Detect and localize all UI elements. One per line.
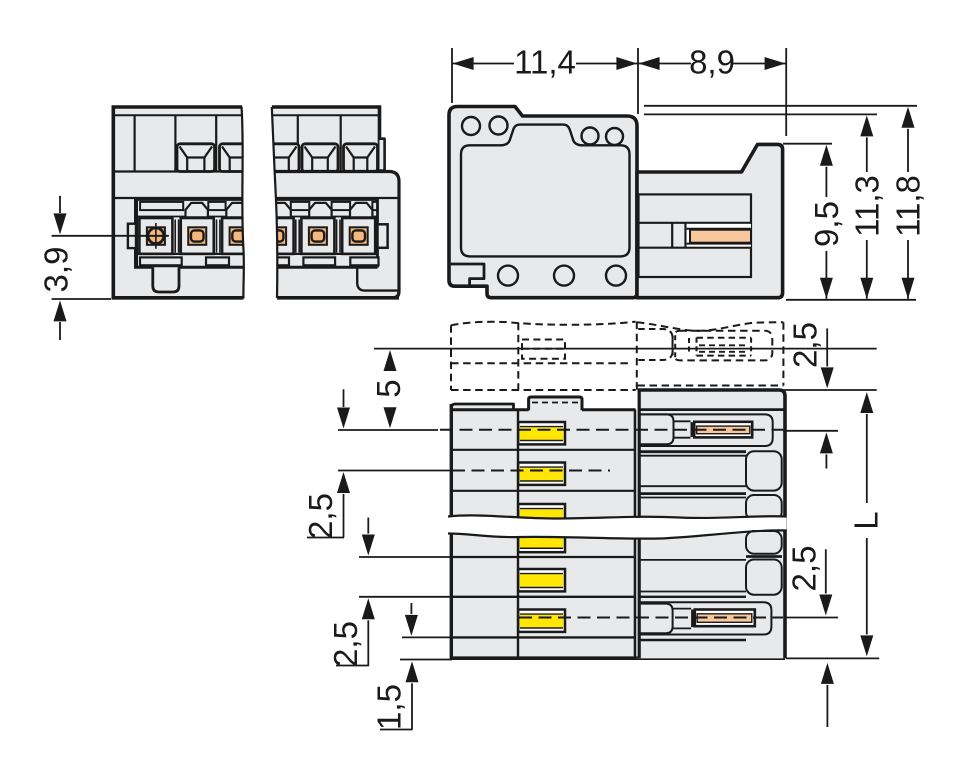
svg-text:9,5: 9,5 — [808, 201, 845, 247]
svg-text:L: L — [848, 511, 885, 529]
svg-text:2,5: 2,5 — [787, 322, 824, 368]
svg-text:11,4: 11,4 — [514, 44, 576, 81]
svg-text:8,9: 8,9 — [689, 44, 735, 81]
svg-text:11,8: 11,8 — [890, 175, 927, 237]
svg-text:5: 5 — [370, 379, 407, 397]
svg-text:11,3: 11,3 — [848, 175, 885, 237]
svg-text:2,5: 2,5 — [302, 493, 339, 539]
svg-text:3,9: 3,9 — [37, 247, 74, 293]
svg-text:1,5: 1,5 — [371, 684, 408, 730]
svg-text:2,5: 2,5 — [786, 546, 823, 592]
svg-text:2,5: 2,5 — [327, 621, 364, 667]
